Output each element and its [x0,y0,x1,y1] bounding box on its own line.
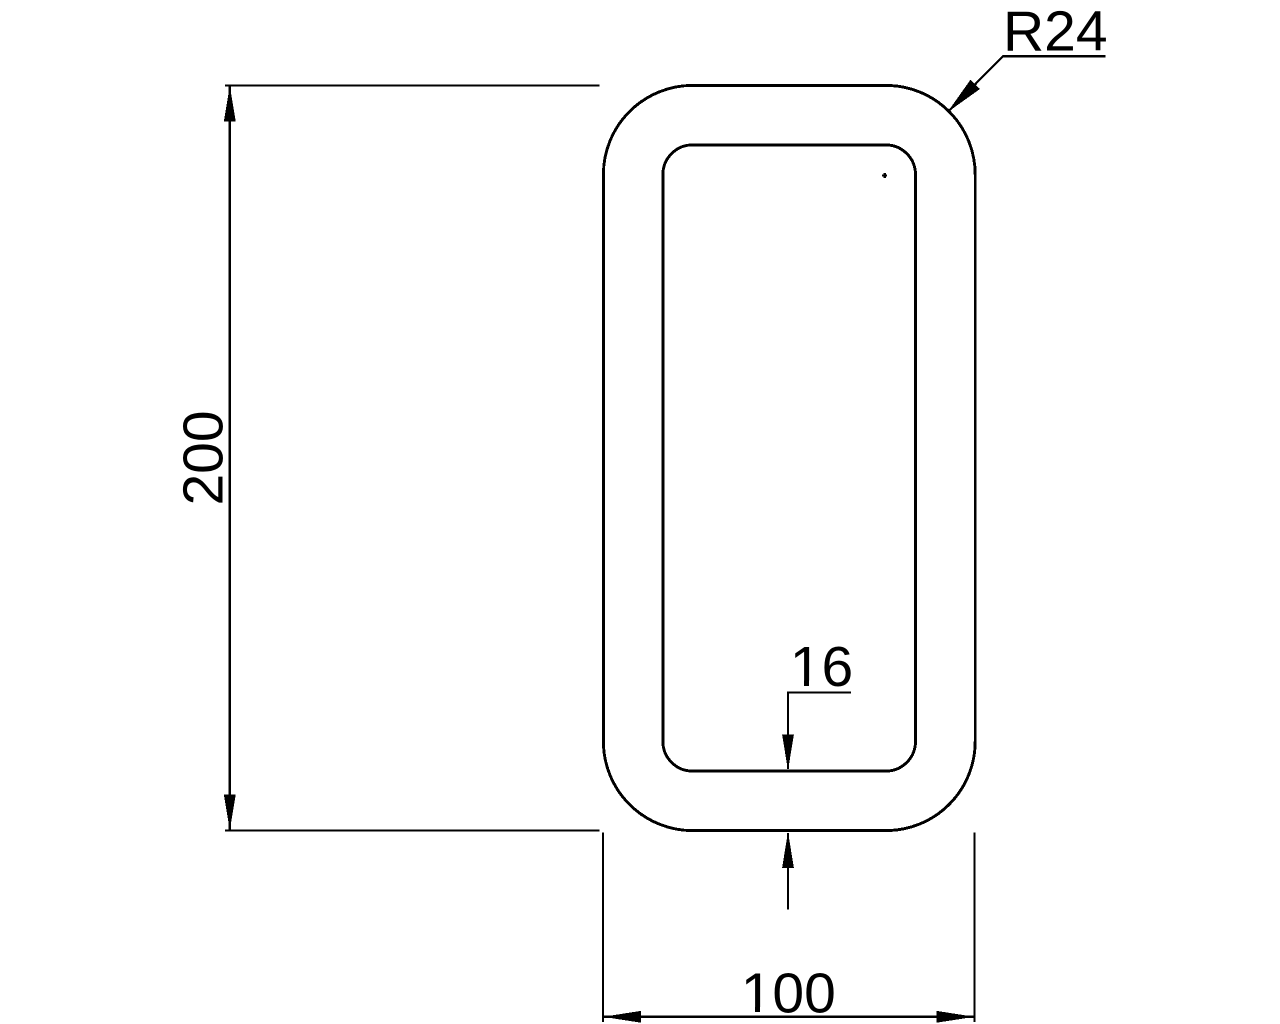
svg-text:100: 100 [741,961,836,1024]
svg-text:R24: R24 [1003,0,1108,64]
svg-text:16: 16 [790,635,853,699]
svg-text:200: 200 [172,410,236,505]
